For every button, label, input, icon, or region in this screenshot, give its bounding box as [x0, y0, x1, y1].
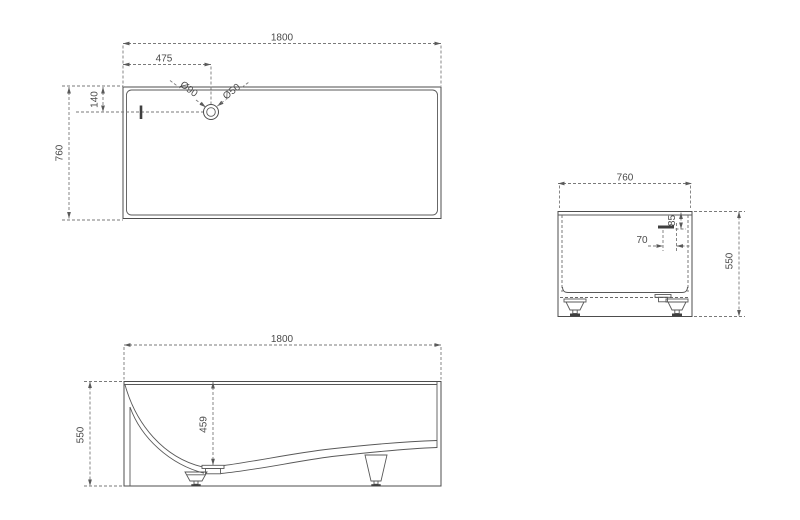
side-overflow-offset-label: 70 [636, 235, 648, 246]
drain-inner-leader [242, 82, 250, 88]
foot-pad [191, 484, 200, 486]
foot-pad [672, 314, 682, 317]
basin-upper-left-curve [125, 384, 202, 467]
side-foot-right [666, 299, 688, 316]
front-drain-fitting [202, 465, 224, 474]
foot-bolt [675, 310, 679, 314]
plan-dim-drain-y: 140 [90, 87, 105, 112]
foot-bolt [194, 481, 198, 484]
side-dim-width: 760 [558, 173, 692, 209]
drain-outer-dia-label: Ø90 [178, 79, 200, 99]
front-dim-height: 550 [76, 382, 123, 487]
plan-inner-rim [127, 90, 438, 215]
side-basin-bottom [563, 287, 688, 293]
side-foot-left [564, 299, 586, 316]
front-dim-inner-depth: 459 [199, 382, 215, 465]
front-foot-right [365, 455, 387, 486]
technical-drawing-svg: Ø90 Ø50 1800 475 140 [0, 0, 800, 520]
plan-drain: Ø90 Ø50 [170, 79, 250, 119]
basin-upper-right-curve [224, 441, 437, 466]
side-height-label: 550 [725, 252, 736, 269]
side-width-label: 760 [617, 173, 634, 184]
front-dim-length: 1800 [124, 334, 441, 380]
plan-view: Ø90 Ø50 1800 475 140 [55, 33, 442, 221]
front-view: 1800 550 459 [76, 334, 442, 486]
plan-outer-edge [123, 87, 441, 219]
drain-inner-leader [217, 100, 225, 106]
drawing-sheet: Ø90 Ø50 1800 475 140 [0, 0, 800, 520]
basin-lower-left-curve [130, 407, 204, 473]
front-outer-edge [124, 382, 441, 487]
foot-pad [371, 484, 380, 486]
plan-outline [123, 87, 441, 219]
front-length-label: 1800 [271, 334, 294, 345]
front-inner-depth-label: 459 [199, 416, 210, 433]
front-height-label: 550 [76, 426, 87, 443]
plan-length-label: 1800 [271, 33, 294, 44]
plan-overflow-tick [140, 106, 143, 120]
plan-drain-x-label: 475 [156, 54, 173, 65]
plan-drain-y-label: 140 [90, 91, 101, 108]
front-foot-left [185, 472, 207, 486]
foot-bolt [573, 310, 577, 314]
side-drain-trap [655, 295, 671, 302]
foot-bolt [374, 481, 378, 484]
drain-inner-dia-label: Ø50 [221, 82, 243, 103]
front-basin-profile [125, 384, 437, 474]
drain-inner-circle [207, 108, 216, 117]
plan-width-label: 760 [55, 144, 66, 161]
basin-lower-right-curve [221, 448, 437, 474]
foot-pad [570, 314, 580, 317]
side-view: 760 85 70 550 [558, 173, 745, 317]
plan-dim-drain-x: 475 [123, 54, 211, 105]
side-dim-height: 550 [694, 212, 745, 317]
front-outline [124, 382, 441, 487]
